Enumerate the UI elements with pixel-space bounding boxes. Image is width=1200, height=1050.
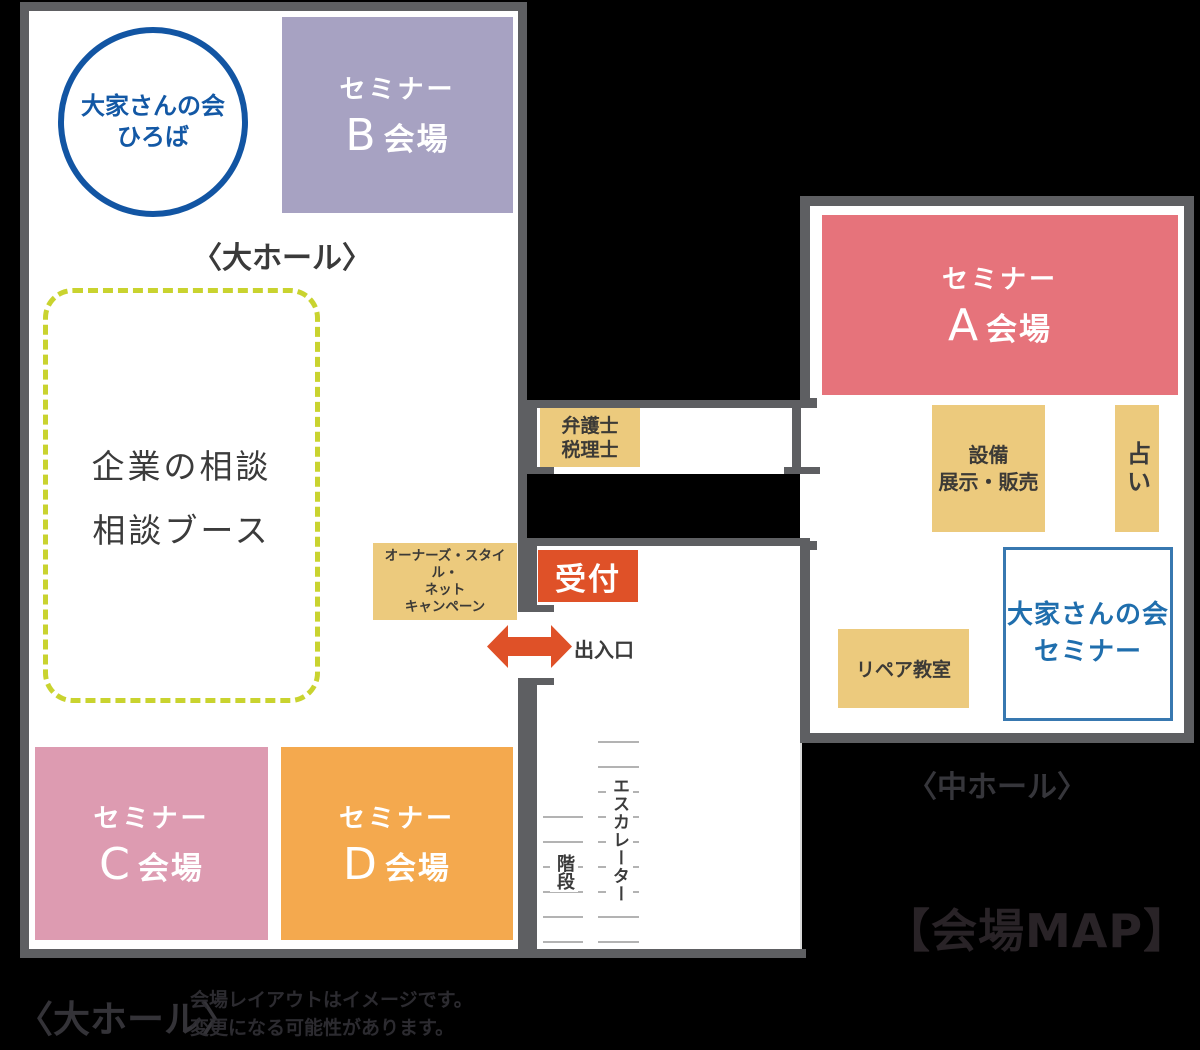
stairs-label: 階段	[550, 852, 578, 892]
wall-room-top	[527, 400, 810, 408]
repair-label: リペア教室	[856, 655, 951, 682]
seminar-c-prefix: セミナー	[93, 798, 209, 835]
layout-note-line2: 変更になる可能性があります。	[190, 1014, 473, 1042]
repair-booth: リペア教室	[838, 629, 969, 708]
middle-hall-door-gap	[800, 408, 810, 541]
fortune-label: 占い	[1119, 439, 1156, 499]
seminar-a-prefix: セミナー	[942, 259, 1058, 296]
wall-room-left	[527, 400, 537, 474]
ooya-seminar-line2: セミナー	[1034, 634, 1142, 671]
seminar-d-room: セミナー D会場	[281, 747, 513, 940]
owners-style-line2: ネット	[425, 582, 466, 599]
seminar-b-prefix: セミナー	[339, 69, 455, 106]
venue-map: 大家さんの会 ひろば セミナー B会場 〈大ホール〉 企業の相談 相談ブース セ…	[0, 0, 1200, 1050]
entrance-arrow-icon	[487, 625, 572, 668]
wall-room-right-cap	[784, 467, 820, 474]
seminar-c-room: セミナー C会場	[35, 747, 268, 940]
consult-booth-line2: 相談ブース	[92, 504, 270, 552]
ooya-seminar-line1: 大家さんの会	[1007, 597, 1169, 634]
lawyer-line1: 弁護士	[561, 414, 618, 438]
seminar-a-room: セミナー A会場	[822, 215, 1178, 395]
equipment-booth: 設備 展示・販売	[932, 405, 1045, 532]
seminar-d-letter: D	[343, 839, 377, 890]
fortune-booth: 占い	[1115, 405, 1159, 532]
owners-style-line3: キャンペーン	[405, 599, 485, 616]
seminar-c-suffix: 会場	[138, 843, 204, 888]
wall-corridor-top	[527, 538, 810, 546]
wall-corridor-left-lower	[527, 685, 537, 950]
wall-corridor-left-upper	[527, 546, 537, 612]
seminar-c-letter: C	[99, 839, 130, 890]
wall-corridor-bottom	[527, 949, 806, 958]
escalator-label: エスカレーター	[606, 775, 633, 905]
wall-corridor-left-cap-upper	[519, 605, 554, 612]
reception-desk: 受付	[538, 550, 638, 602]
hiroba-circle: 大家さんの会 ひろば	[58, 27, 248, 217]
owners-style-booth: オーナーズ・スタイル・ ネット キャンペーン	[373, 543, 517, 620]
lawyer-tax-booth: 弁護士 税理士	[540, 408, 640, 467]
seminar-d-suffix: 会場	[385, 843, 451, 888]
seminar-a-letter: A	[948, 300, 978, 351]
wall-middle-hall-door-cap-bottom	[800, 541, 817, 550]
hiroba-line1: 大家さんの会	[81, 91, 225, 122]
equipment-line2: 展示・販売	[939, 469, 1039, 496]
ooya-seminar-box: 大家さんの会 セミナー	[1003, 547, 1173, 721]
wall-corridor-left-cap-lower	[519, 678, 554, 685]
seminar-d-prefix: セミナー	[339, 798, 455, 835]
lawyer-line2: 税理士	[561, 438, 618, 462]
seminar-b-room: セミナー B会場	[282, 17, 513, 213]
hiroba-line2: ひろば	[117, 122, 189, 153]
layout-note: 会場レイアウトはイメージです。 変更になる可能性があります。	[190, 986, 473, 1042]
seminar-b-suffix: 会場	[384, 114, 450, 159]
seminar-a-suffix: 会場	[986, 304, 1052, 349]
wall-room-left-cap	[519, 467, 554, 474]
consult-booth-area: 企業の相談 相談ブース	[43, 288, 320, 703]
entrance-label: 出入口	[574, 634, 634, 663]
layout-note-line1: 会場レイアウトはイメージです。	[190, 986, 473, 1014]
seminar-b-letter: B	[345, 110, 375, 161]
owners-style-line1: オーナーズ・スタイル・	[373, 548, 517, 582]
large-hall-inner-label: 〈大ホール〉	[152, 233, 412, 277]
middle-hall-label: 〈中ホール〉	[800, 762, 1194, 806]
equipment-line1: 設備	[969, 442, 1009, 469]
wall-middle-hall-door-cap-top	[800, 398, 817, 408]
wall-room-right	[792, 400, 801, 474]
consult-booth-line1: 企業の相談	[92, 440, 272, 488]
map-title: 【会場MAP】	[884, 895, 1190, 961]
